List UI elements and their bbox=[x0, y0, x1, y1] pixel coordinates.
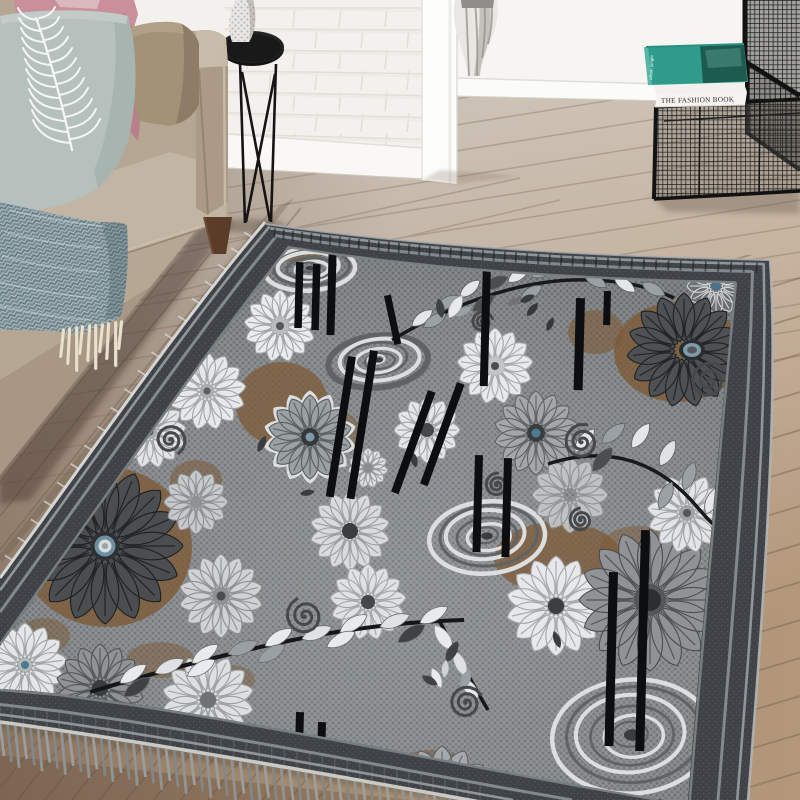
svg-text:THE FASHION BOOK: THE FASHION BOOK bbox=[661, 95, 735, 105]
